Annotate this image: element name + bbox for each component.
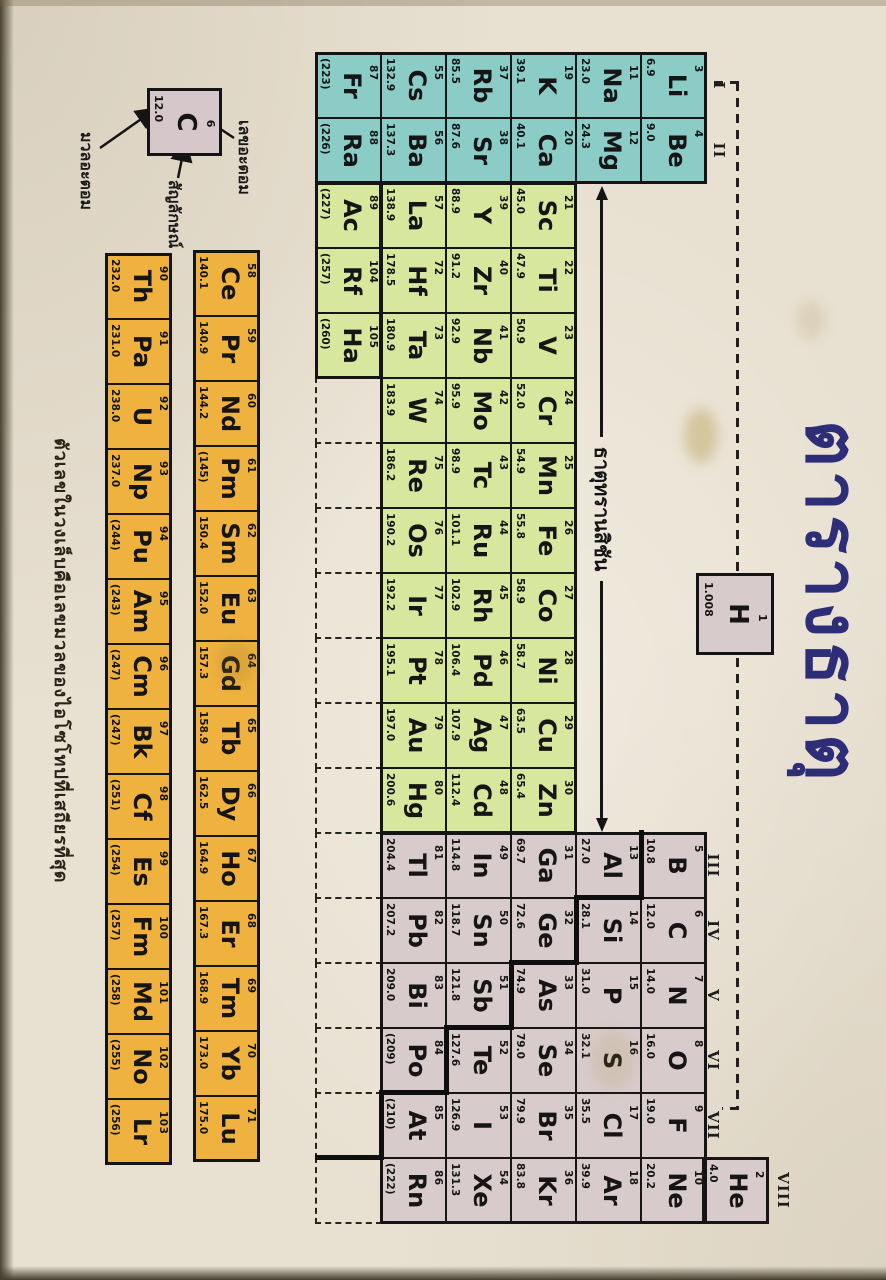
element-cell-N: 7N14.0 <box>640 962 707 1029</box>
element-symbol: Lu <box>216 1097 244 1160</box>
element-symbol: Ra <box>338 119 366 182</box>
element-symbol: B <box>663 834 691 897</box>
element-symbol: Co <box>533 574 561 637</box>
element-cell-Te: 52Te127.6 <box>445 1027 512 1094</box>
atomic-mass: 192.2 <box>384 578 396 611</box>
atomic-number: 51 <box>497 975 509 991</box>
atomic-mass: (251) <box>109 779 121 811</box>
element-cell-Cd: 48Cd112.4 <box>445 767 512 834</box>
element-symbol: Br <box>533 1094 561 1157</box>
page-edge-shadow <box>0 1266 886 1280</box>
atomic-number: 61 <box>245 458 257 474</box>
element-cell-Ag: 47Ag107.9 <box>445 702 512 769</box>
element-symbol: Fr <box>338 54 366 117</box>
atomic-number: 30 <box>562 780 574 796</box>
undiscovered-element-cell <box>315 832 382 899</box>
atomic-mass: 98.9 <box>449 448 461 474</box>
atomic-mass: (227) <box>319 188 331 220</box>
atomic-number: 67 <box>245 848 257 864</box>
atomic-number: 74 <box>432 390 444 406</box>
atomic-number: 101 <box>157 981 169 1004</box>
undiscovered-element-cell <box>315 702 382 769</box>
element-symbol: Hf <box>403 249 431 312</box>
element-cell-Nd: 60Nd144.2 <box>193 380 260 447</box>
element-cell-Cr: 24Cr52.0 <box>510 377 577 444</box>
element-symbol: K <box>533 54 561 117</box>
atomic-number: 83 <box>432 975 444 991</box>
element-cell-Fr: 87Fr(223) <box>315 52 382 119</box>
element-cell-S: 16S32.1 <box>575 1027 642 1094</box>
atomic-mass: 63.5 <box>514 708 526 734</box>
atomic-number: 53 <box>497 1105 509 1121</box>
atomic-mass: (247) <box>109 649 121 681</box>
atomic-mass: 164.9 <box>197 841 209 874</box>
element-symbol: Eu <box>216 577 244 640</box>
atomic-mass: 72.6 <box>514 903 526 929</box>
atomic-mass: 186.2 <box>384 448 396 481</box>
atomic-mass: 168.9 <box>197 971 209 1004</box>
element-symbol: Cu <box>533 704 561 767</box>
element-cell-Rh: 45Rh102.9 <box>445 572 512 639</box>
atomic-mass: (209) <box>384 1033 396 1065</box>
atomic-mass: 101.1 <box>449 513 461 546</box>
element-symbol: Ge <box>533 899 561 962</box>
undiscovered-element-cell <box>315 962 382 1029</box>
atomic-mass: 158.9 <box>197 711 209 744</box>
element-cell-Ge: 32Ge72.6 <box>510 897 577 964</box>
element-symbol: Te <box>468 1029 496 1092</box>
element-symbol: Ne <box>663 1159 691 1222</box>
atomic-number: 40 <box>497 260 509 276</box>
undiscovered-element-cell <box>315 572 382 639</box>
element-symbol: La <box>403 184 431 247</box>
element-cell-Cl: 17Cl35.5 <box>575 1092 642 1159</box>
element-cell-Ho: 67Ho164.9 <box>193 835 260 902</box>
atomic-mass: (257) <box>109 909 121 941</box>
element-cell-Pd: 46Pd106.4 <box>445 637 512 704</box>
element-symbol: Sr <box>468 119 496 182</box>
element-cell-Ca: 20Ca40.1 <box>510 117 577 184</box>
element-symbol: Cr <box>533 379 561 442</box>
staircase-segment <box>445 1025 514 1030</box>
atomic-mass: 102.9 <box>449 578 461 611</box>
element-symbol: Zn <box>533 769 561 832</box>
atomic-mass: 91.2 <box>449 253 461 279</box>
element-cell-Ni: 28Ni58.7 <box>510 637 577 704</box>
element-cell-In: 49In114.8 <box>445 832 512 899</box>
transition-arrow: ธาตุทรานสิชัน <box>587 186 617 832</box>
atomic-mass: 95.9 <box>449 383 461 409</box>
atomic-number: 38 <box>497 130 509 146</box>
element-cell-V: 23V50.9 <box>510 312 577 379</box>
element-cell-Tc: 43Tc98.9 <box>445 442 512 509</box>
element-cell-Md: 101Md(258) <box>105 968 172 1035</box>
group-label-IV: IV <box>704 897 722 964</box>
atomic-mass: 138.9 <box>384 188 396 221</box>
atomic-mass: 6.9 <box>644 58 656 77</box>
atomic-number: 94 <box>157 526 169 542</box>
element-symbol: Nd <box>216 382 244 445</box>
atomic-mass: 79.0 <box>514 1033 526 1059</box>
element-cell-Na: 11Na23.0 <box>575 52 642 119</box>
element-cell-Fm: 100Fm(257) <box>105 903 172 970</box>
atomic-number: 71 <box>245 1108 257 1124</box>
legend-atomic-mass-label: มวลอะตอม <box>73 132 98 210</box>
element-symbol: Md <box>128 970 156 1033</box>
atomic-mass: 39.1 <box>514 58 526 84</box>
element-symbol: Dy <box>216 772 244 835</box>
element-cell-Ne: 10Ne20.2 <box>640 1157 707 1224</box>
atomic-mass: 69.7 <box>514 838 526 864</box>
element-symbol: Ag <box>468 704 496 767</box>
atomic-number: 66 <box>245 783 257 799</box>
element-cell-Ga: 31Ga69.7 <box>510 832 577 899</box>
atomic-number: 105 <box>367 325 379 348</box>
element-symbol: Lr <box>128 1100 156 1163</box>
atomic-mass: 4.0 <box>707 1164 719 1183</box>
element-symbol: C <box>171 91 201 153</box>
element-symbol: Kr <box>533 1159 561 1222</box>
staircase-segment <box>445 1025 450 1094</box>
atomic-number: 22 <box>562 260 574 276</box>
atomic-mass: (145) <box>197 451 209 483</box>
atomic-mass: 190.2 <box>384 513 396 546</box>
element-cell-Hg: 80Hg200.6 <box>380 767 447 834</box>
element-symbol: F <box>663 1094 691 1157</box>
atomic-number: 23 <box>562 325 574 341</box>
element-symbol: Mo <box>468 379 496 442</box>
element-cell-Br: 35Br79.9 <box>510 1092 577 1159</box>
element-symbol: Cd <box>468 769 496 832</box>
atomic-mass: 195.1 <box>384 643 396 676</box>
element-cell-Tb: 65Tb158.9 <box>193 705 260 772</box>
atomic-number: 42 <box>497 390 509 406</box>
element-symbol: Zr <box>468 249 496 312</box>
atomic-number: 21 <box>562 195 574 211</box>
element-symbol: Cf <box>128 775 156 838</box>
atomic-number: 85 <box>432 1105 444 1121</box>
atomic-number: 28 <box>562 650 574 666</box>
element-symbol: Ha <box>338 314 366 377</box>
atomic-number: 103 <box>157 1111 169 1134</box>
element-symbol: Rb <box>468 54 496 117</box>
atomic-number: 63 <box>245 588 257 604</box>
element-symbol: Al <box>598 834 626 897</box>
element-symbol: Tm <box>216 967 244 1030</box>
atomic-mass: 162.5 <box>197 776 209 809</box>
atomic-number: 95 <box>157 591 169 607</box>
periodic-table-landscape: ตารางธาตุ ธาตุทรานสิชัน 1 H 1.008 3Li6.9… <box>0 0 886 1280</box>
page-title: ตารางธาตุ <box>784 420 880 890</box>
element-symbol: Hg <box>403 769 431 832</box>
atomic-number: 104 <box>367 260 379 283</box>
atomic-number: 69 <box>245 978 257 994</box>
atomic-number: 91 <box>157 331 169 347</box>
element-cell-Fe: 26Fe55.8 <box>510 507 577 574</box>
element-symbol: Be <box>663 119 691 182</box>
element-cell-Pu: 94Pu(244) <box>105 513 172 580</box>
element-cell-Es: 99Es(254) <box>105 838 172 905</box>
element-symbol: Rh <box>468 574 496 637</box>
atomic-mass: 209.0 <box>384 968 396 1001</box>
atomic-mass: 114.8 <box>449 838 461 871</box>
group-label-VII: VII <box>704 1092 722 1159</box>
element-cell-Pt: 78Pt195.1 <box>380 637 447 704</box>
atomic-mass: 197.0 <box>384 708 396 741</box>
element-cell-Li: 3Li6.9 <box>640 52 707 119</box>
atomic-mass: 79.9 <box>514 1098 526 1124</box>
arrow-left-icon <box>596 186 608 200</box>
element-symbol: He <box>724 1160 752 1221</box>
element-cell-Hf: 72Hf178.5 <box>380 247 447 314</box>
element-cell-Sr: 38Sr87.6 <box>445 117 512 184</box>
scanned-page: ตารางธาตุ ธาตุทรานสิชัน 1 H 1.008 3Li6.9… <box>0 0 886 1280</box>
element-cell-Nb: 41Nb92.9 <box>445 312 512 379</box>
atomic-number: 24 <box>562 390 574 406</box>
atomic-mass: 19.0 <box>644 1098 656 1124</box>
atomic-number: 49 <box>497 845 509 861</box>
atomic-number: 3 <box>692 65 704 73</box>
element-symbol: H <box>723 576 753 652</box>
element-symbol: Fe <box>533 509 561 572</box>
element-cell-B: 5B10.8 <box>640 832 707 899</box>
atomic-number: 70 <box>245 1043 257 1059</box>
element-cell-U: 92U238.0 <box>105 383 172 450</box>
element-cell-Ba: 56Ba137.3 <box>380 117 447 184</box>
atomic-mass: 14.0 <box>644 968 656 994</box>
element-symbol: Tb <box>216 707 244 770</box>
group-label-III: III <box>704 832 722 899</box>
atomic-number: 36 <box>562 1170 574 1186</box>
element-cell-Cm: 96Cm(247) <box>105 643 172 710</box>
element-cell-Ir: 77Ir192.2 <box>380 572 447 639</box>
element-cell-O: 8O16.0 <box>640 1027 707 1094</box>
element-cell-At: 85At(210) <box>380 1092 447 1159</box>
atomic-number: 62 <box>245 523 257 539</box>
atomic-number: 82 <box>432 910 444 926</box>
atomic-number: 99 <box>157 851 169 867</box>
atomic-number: 68 <box>245 913 257 929</box>
element-cell-Mo: 42Mo95.9 <box>445 377 512 444</box>
atomic-number: 9 <box>692 1105 704 1113</box>
element-symbol: Ac <box>338 184 366 247</box>
element-cell-Ha: 105Ha(260) <box>315 312 382 379</box>
atomic-number: 97 <box>157 721 169 737</box>
legend: 6 C 12.0 เลขอะตอม สัญลักษณ์ มวลอะตอม <box>38 60 268 330</box>
atomic-number: 64 <box>245 653 257 669</box>
element-symbol: N <box>663 964 691 1027</box>
atomic-mass: 12.0 <box>644 903 656 929</box>
element-cell-H: 1 H 1.008 <box>696 573 774 655</box>
atomic-number: 86 <box>432 1170 444 1186</box>
element-cell-Ar: 18Ar39.9 <box>575 1157 642 1224</box>
element-symbol: C <box>663 899 691 962</box>
atomic-number: 31 <box>562 845 574 861</box>
atomic-mass: 92.9 <box>449 318 461 344</box>
element-cell-He: 2He4.0 <box>702 1157 769 1224</box>
element-cell-Np: 93Np237.0 <box>105 448 172 515</box>
atomic-mass: 45.0 <box>514 188 526 214</box>
atomic-number: 47 <box>497 715 509 731</box>
atomic-number: 6 <box>204 120 217 128</box>
atomic-mass: 150.4 <box>197 516 209 549</box>
element-symbol: Rn <box>403 1159 431 1222</box>
undiscovered-element-cell <box>315 767 382 834</box>
atomic-number: 45 <box>497 585 509 601</box>
element-cell-Am: 95Am(243) <box>105 578 172 645</box>
atomic-mass: 106.4 <box>449 643 461 676</box>
element-symbol: Se <box>533 1029 561 1092</box>
atomic-mass: 85.5 <box>449 58 461 84</box>
element-cell-Sm: 62Sm150.4 <box>193 510 260 577</box>
element-symbol: Ba <box>403 119 431 182</box>
element-cell-Ti: 22Ti47.9 <box>510 247 577 314</box>
atomic-number: 93 <box>157 461 169 477</box>
atomic-mass: 237.0 <box>109 454 121 487</box>
undiscovered-element-cell <box>315 1157 382 1224</box>
element-symbol: Os <box>403 509 431 572</box>
element-cell-Gd: 64Gd157.3 <box>193 640 260 707</box>
atomic-number: 27 <box>562 585 574 601</box>
atomic-mass: 74.9 <box>514 968 526 994</box>
atomic-number: 46 <box>497 650 509 666</box>
element-cell-Dy: 66Dy162.5 <box>193 770 260 837</box>
element-symbol: Rf <box>338 249 366 312</box>
paper-stain <box>684 408 718 463</box>
element-cell-F: 9F19.0 <box>640 1092 707 1159</box>
atomic-number: 7 <box>692 975 704 983</box>
element-symbol: Ni <box>533 639 561 702</box>
element-symbol: I <box>468 1094 496 1157</box>
element-cell-Sc: 21Sc45.0 <box>510 182 577 249</box>
atomic-number: 11 <box>627 65 639 81</box>
element-cell-Cu: 29Cu63.5 <box>510 702 577 769</box>
atomic-number: 72 <box>432 260 444 276</box>
atomic-mass: (222) <box>384 1163 396 1195</box>
atomic-number: 60 <box>245 393 257 409</box>
atomic-number: 98 <box>157 786 169 802</box>
atomic-mass: 83.8 <box>514 1163 526 1189</box>
element-symbol: Fm <box>128 905 156 968</box>
atomic-mass: 126.9 <box>449 1098 461 1131</box>
legend-sample-cell: 6 C 12.0 <box>147 88 222 156</box>
element-symbol: Pt <box>403 639 431 702</box>
element-symbol: Ti <box>533 249 561 312</box>
atomic-mass: 238.0 <box>109 389 121 422</box>
element-symbol: V <box>533 314 561 377</box>
element-symbol: Mn <box>533 444 561 507</box>
atomic-number: 12 <box>627 130 639 146</box>
legend-symbol-label: สัญลักษณ์ <box>161 180 186 248</box>
atomic-mass: 32.1 <box>579 1033 591 1059</box>
element-cell-K: 19K39.1 <box>510 52 577 119</box>
undiscovered-element-cell <box>315 1027 382 1094</box>
atomic-mass: 35.5 <box>579 1098 591 1124</box>
atomic-number: 6 <box>692 910 704 918</box>
atomic-number: 26 <box>562 520 574 536</box>
element-cell-Zr: 40Zr91.2 <box>445 247 512 314</box>
staircase-segment <box>380 1090 385 1159</box>
atomic-mass: 16.0 <box>644 1033 656 1059</box>
atomic-mass: 131.3 <box>449 1163 461 1196</box>
atomic-mass: 152.0 <box>197 581 209 614</box>
atomic-mass: 87.6 <box>449 123 461 149</box>
atomic-number: 57 <box>432 195 444 211</box>
atomic-number: 43 <box>497 455 509 471</box>
arrow-right-icon <box>596 818 608 832</box>
element-symbol: P <box>598 964 626 1027</box>
page-edge-shadow <box>0 0 886 6</box>
element-symbol: Si <box>598 899 626 962</box>
atomic-number: 89 <box>367 195 379 211</box>
atomic-mass: 183.9 <box>384 383 396 416</box>
atomic-mass: 88.9 <box>449 188 461 214</box>
element-cell-Lu: 71Lu175.0 <box>193 1095 260 1162</box>
element-cell-Cs: 55Cs132.9 <box>380 52 447 119</box>
element-symbol: Ta <box>403 314 431 377</box>
atomic-mass: (255) <box>109 1039 121 1071</box>
atomic-mass: 132.9 <box>384 58 396 91</box>
atomic-mass: (243) <box>109 584 121 616</box>
element-cell-I: 53I126.9 <box>445 1092 512 1159</box>
staircase-segment <box>575 895 580 964</box>
atomic-number: 17 <box>627 1105 639 1121</box>
atomic-number: 39 <box>497 195 509 211</box>
element-cell-Ta: 73Ta180.9 <box>380 312 447 379</box>
atomic-number: 87 <box>367 65 379 81</box>
atomic-number: 100 <box>157 916 169 939</box>
atomic-mass: 40.1 <box>514 123 526 149</box>
atomic-number: 81 <box>432 845 444 861</box>
staircase-segment <box>380 1090 449 1095</box>
element-symbol: Er <box>216 902 244 965</box>
element-symbol: Mg <box>598 119 626 182</box>
atomic-number: 33 <box>562 975 574 991</box>
atomic-mass: 31.0 <box>579 968 591 994</box>
element-cell-Se: 34Se79.0 <box>510 1027 577 1094</box>
atomic-number: 55 <box>432 65 444 81</box>
atomic-mass: (256) <box>109 1104 121 1136</box>
atomic-mass: 28.1 <box>579 903 591 929</box>
atomic-mass: (257) <box>319 253 331 285</box>
element-cell-Be: 4Be9.0 <box>640 117 707 184</box>
group-label-I: I <box>710 52 728 119</box>
element-cell-Re: 75Re186.2 <box>380 442 447 509</box>
element-cell-Ru: 44Ru101.1 <box>445 507 512 574</box>
element-symbol: Pm <box>216 447 244 510</box>
undiscovered-element-cell <box>315 377 382 444</box>
element-symbol: Xe <box>468 1159 496 1222</box>
atomic-mass: 157.3 <box>197 646 209 679</box>
undiscovered-element-cell <box>315 1092 382 1159</box>
element-symbol: Bi <box>403 964 431 1027</box>
element-cell-Rb: 37Rb85.5 <box>445 52 512 119</box>
element-symbol: Sn <box>468 899 496 962</box>
element-cell-Sn: 50Sn118.7 <box>445 897 512 964</box>
staircase-segment <box>575 895 644 900</box>
element-cell-Ra: 88Ra(226) <box>315 117 382 184</box>
element-symbol: Yb <box>216 1032 244 1095</box>
atomic-mass: 200.6 <box>384 773 396 806</box>
element-cell-Eu: 63Eu152.0 <box>193 575 260 642</box>
element-cell-Y: 39Y88.9 <box>445 182 512 249</box>
element-symbol: Tl <box>403 834 431 897</box>
atomic-number: 44 <box>497 520 509 536</box>
element-cell-Rn: 86Rn(222) <box>380 1157 447 1224</box>
element-cell-Ac: 89Ac(227) <box>315 182 382 249</box>
atomic-mass: 137.3 <box>384 123 396 156</box>
element-symbol: Tc <box>468 444 496 507</box>
